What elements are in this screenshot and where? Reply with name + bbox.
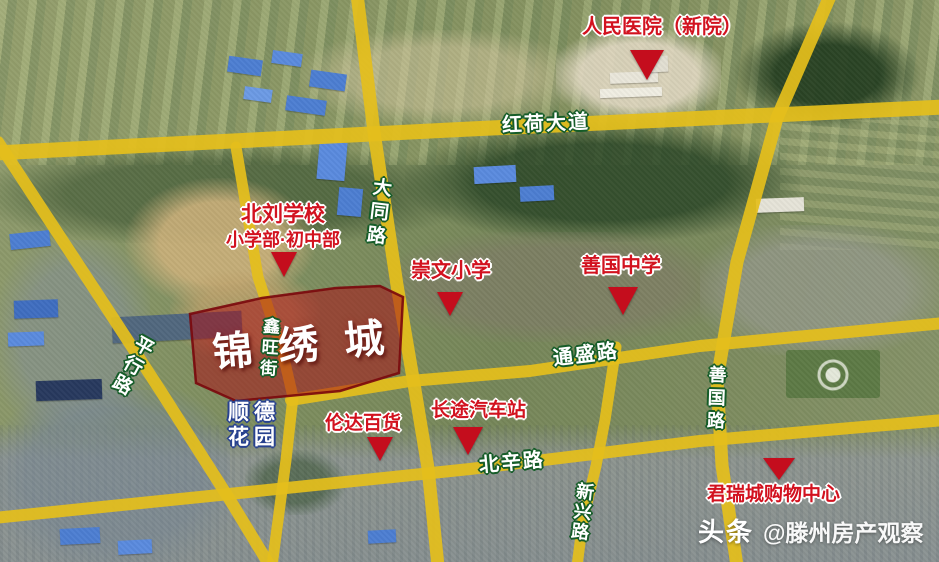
shanguo-road-label: 善国路 [704,365,727,435]
marker-junrui-mall [763,458,795,480]
bus-station-label: 长途汽车站 [431,400,526,422]
road-line-honghe-avenue [0,107,939,153]
watermark-account: @滕州房产观察 [763,514,923,548]
marker-peoples-hospital [630,50,664,80]
shunde-garden-line2: 花园 [228,425,280,450]
beiliu-school-label: 北刘学校 小学部·初中部 [206,203,360,251]
watermark-brand: 头条 [698,512,754,549]
beiliu-school-detail: 小学部·初中部 [206,230,360,251]
marker-bus-station [453,427,483,455]
marker-beiliu-school [271,252,297,277]
marker-chongwen-primary [437,292,463,316]
marker-lunda-store [367,437,393,461]
honghe-avenue-label: 红荷大道 [502,111,591,138]
chongwen-primary-label: 崇文小学 [411,260,491,283]
satellite-map: 人民医院（新院） 北刘学校 小学部·初中部 崇文小学 善国中学 伦达百货 长途汽… [0,0,939,562]
peoples-hospital-label: 人民医院（新院） [582,16,742,39]
shanguo-middle-label: 善国中学 [581,255,661,278]
marker-shanguo-middle [608,287,638,315]
lunda-store-label: 伦达百货 [325,413,401,435]
beiliu-school-name: 北刘学校 [206,203,360,227]
shunde-garden-label: 顺德 花园 [228,400,280,450]
junrui-mall-label: 君瑞城购物中心 [707,484,840,506]
shunde-garden-line1: 顺德 [228,400,280,425]
watermark: 头条 @滕州房产观察 [698,512,923,549]
